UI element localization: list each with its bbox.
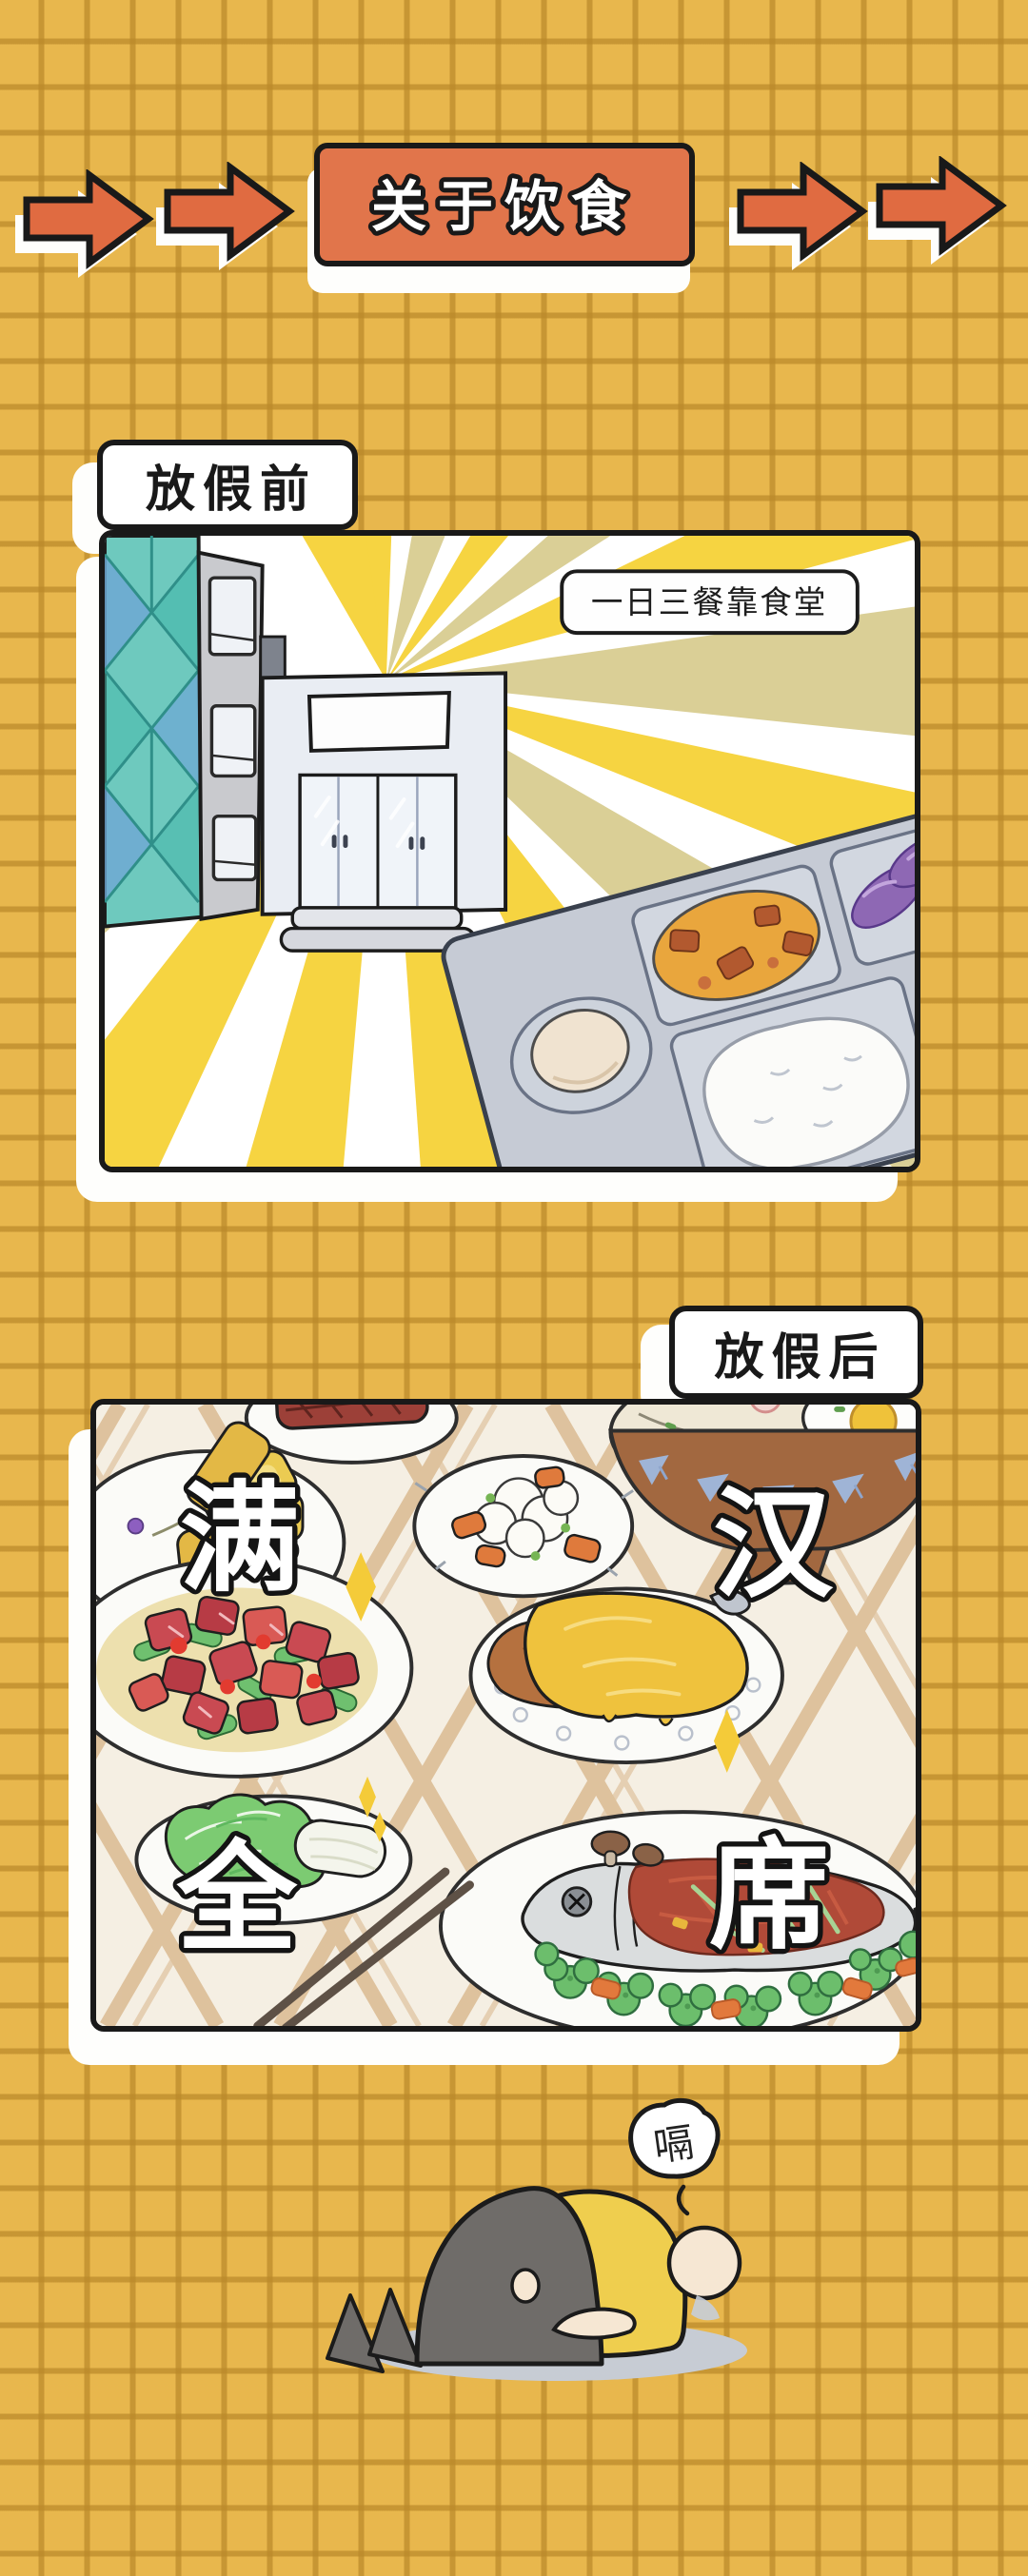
canteen-sign (309, 693, 449, 751)
arrow-right-icon (150, 162, 295, 274)
title-banner: 关于饮食 (314, 143, 695, 266)
window (209, 578, 254, 655)
label-after-text: 放假后 (706, 1317, 885, 1388)
feast-char-man: 满 (180, 1469, 300, 1609)
arrow-right-icon (10, 169, 154, 282)
header: 关于饮食 (0, 0, 1028, 314)
panel-after: 满 汉 全 席 (90, 1399, 921, 2032)
glass-building (105, 536, 202, 927)
panel-before: 一日三餐靠食堂 (99, 530, 920, 1172)
label-after: 放假后 (669, 1306, 923, 1399)
comic-page: 关于饮食 (0, 0, 1028, 2576)
feast-char-xi: 席 (709, 1826, 829, 1966)
cauliflower-plate (414, 1456, 633, 1596)
canteen-scene: 一日三餐靠食堂 (105, 536, 915, 1167)
arrow-right-icon (862, 156, 1007, 268)
feast-char-han: 汉 (713, 1475, 834, 1615)
feast-char-quan: 全 (176, 1829, 298, 1969)
canteen-entrance (263, 673, 505, 951)
outro-character-scene: 嗝 (314, 2094, 761, 2398)
feast-scene: 满 汉 全 席 (96, 1405, 916, 2026)
burp-text: 嗝 (651, 2118, 697, 2170)
ear (512, 2270, 539, 2302)
arrow-right-icon (723, 162, 868, 274)
label-before-text: 放假前 (138, 449, 317, 521)
label-before: 放假前 (97, 440, 358, 530)
step (292, 908, 461, 929)
window (213, 816, 255, 880)
window (211, 706, 254, 777)
head (669, 2228, 740, 2298)
caption-box: 一日三餐靠食堂 (562, 571, 858, 633)
shoe (369, 2290, 421, 2366)
burp-bubble: 嗝 (631, 2100, 718, 2213)
lying-person (327, 2189, 740, 2371)
whole-fish-platter (441, 1812, 916, 2026)
page-title: 关于饮食 (371, 174, 638, 239)
caption-text: 一日三餐靠食堂 (591, 584, 827, 621)
bubble-tail (679, 2187, 687, 2213)
